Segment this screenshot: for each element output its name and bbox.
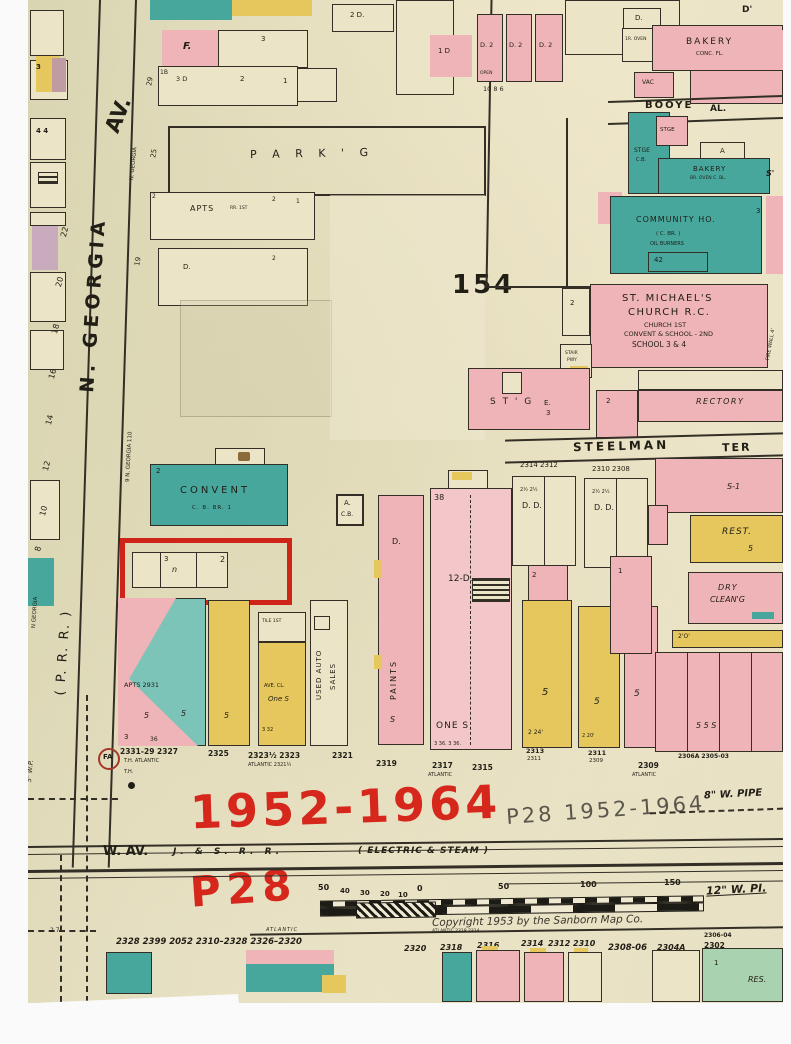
pipe-label-12w: 12" W. PI. [706,882,767,896]
erased-building-trace [180,300,332,417]
building [106,952,152,994]
lot-number: 2 20' [582,734,595,739]
lot-number: 2 [272,197,276,203]
lot-number: 2 24' [528,730,543,736]
used-auto-label-1: USED AUTO [316,650,323,700]
building [158,66,298,106]
parking-lot-outline [168,126,486,196]
convent-label: CONVENT [180,486,250,496]
building [208,600,250,746]
storeys: 5 [594,698,600,707]
lot-number: 3 [164,556,168,563]
bottom-left-numbers: 2328 2399 2052 2310–2328 2326–2320 [116,938,302,947]
bottom-tick-numbers: 2 7 [50,928,60,934]
scale-tick: 10 [398,892,408,899]
street-number: 2308-06 [608,944,647,953]
street-number: 2311 [588,750,606,757]
community-number: 42 [654,257,663,264]
st-michaels-line2: CHURCH R.C. [628,308,710,318]
dashed-track [60,855,62,1002]
house-number: 22 [60,226,70,238]
convent-note: C. B. BR. 1 [192,506,232,512]
street-label-ter: TER [722,442,752,454]
apts-sw-label: APTS 2931 [124,682,159,689]
fa-label: FA [103,754,112,761]
scale-tick: 150 [664,879,681,887]
building-label: D. [392,538,401,546]
building [622,28,654,62]
building-label: 1B [160,70,168,76]
tile-note: TILE 1ST [262,620,281,625]
erased-building-trace [330,195,485,440]
st-michaels-line3: CHURCH 1ST [644,322,686,329]
building [322,975,346,993]
building-bakery [652,25,783,71]
street-label-n-georgia: N. GEORGIA [78,216,109,393]
building-label: 2 D. [350,12,364,19]
scale-tick: 50 [498,883,509,891]
sanborn-map-scan: 3 4 4 22 20 18 16 14 12 10 8 N. GEORGIA … [28,0,783,1003]
building-paints [378,495,424,745]
lot-number: 1 [296,199,300,205]
annotation-red-years: 1952-1964 [189,779,502,836]
building-rest [690,515,783,563]
building-annex [314,616,330,630]
storage-label: S T ' G [490,398,533,407]
lot-number: 1 [618,568,622,575]
building-label: 1 D [438,48,450,55]
community-oil: OIL BURNERS [650,242,684,247]
street-number: 2312 2310 [548,940,595,948]
scale-tick: 50 [318,884,329,892]
bakery-label: BAKERY [686,38,733,47]
building-label: D. [183,264,191,271]
street-label-booye: BOOYE [645,101,693,111]
bakery2-label: BAKERY [693,166,726,173]
street-number: 2317 [432,762,453,770]
building-number-38: 38 [434,494,444,502]
building-label-s1: S-1 [727,483,740,491]
stair-symbol [38,172,58,184]
lot-number: 2 [220,556,225,564]
building-res [702,948,783,1002]
strip-label: 2'O' [678,634,690,640]
parking-label: P A R K ' G [250,147,374,160]
one-s-label: One S [268,696,289,703]
lot-number: 2 [570,300,574,307]
scale-tick: 0 [417,885,423,893]
street-number: 2323½ 2323 [248,752,300,760]
scan-margin-right [783,0,791,1024]
scale-tick: 30 [360,890,370,897]
railroad-label: J. & S. R. R. [173,848,283,857]
lot-number: 29 [146,76,154,86]
street-number: 2325 [208,750,229,758]
storeys: 5 [144,712,149,720]
building-label: A [720,148,725,155]
building [258,612,306,642]
building [766,196,783,274]
house-number-row: 10 8 6 [483,86,504,93]
building [655,458,783,513]
pipe-label-8w: 8" W. PIPE [704,788,763,801]
storeys: 5 [748,545,753,553]
th-label: T.H. [124,770,133,775]
acb-label-a: A. [344,500,351,507]
scale-tick: 40 [340,888,350,895]
scale-tick: 20 [380,891,390,898]
storeys: 5 [224,712,229,720]
street-number: 2321 [332,752,353,760]
community-br: ( C. BR. ) [656,232,680,238]
storeys: S [390,716,395,724]
rest-label: REST. [722,528,752,537]
building [634,72,674,98]
marker-dot [128,782,135,789]
lot-number: 2 [606,398,610,405]
community-label: COMMUNITY HO. [636,216,716,224]
lot-number: 2 [156,468,160,475]
building-tab [374,655,382,669]
res-label: RES. [748,976,766,984]
paints-label: PAINTS [390,660,398,700]
storeys: 5 [181,710,186,718]
street-label-steelman: STEELMAN [573,439,669,454]
building [430,35,472,77]
building-annex [502,372,522,394]
street-number: 2306A 2305-03 [678,754,729,760]
bakery2-note: BR. OVEN C. BL. [690,177,726,182]
storage-e: E. [544,400,551,407]
lot-number: 3 [124,734,128,741]
building-38 [430,488,512,750]
building-label: 2 [272,256,276,262]
building [30,10,64,56]
st-michaels-line4: CONVENT & SCHOOL - 2ND [624,331,713,338]
lot-number: 36 [150,737,158,743]
building [132,552,228,588]
stair-pwy-label2: PWY [567,359,577,364]
lot-number: 1 [714,960,718,967]
building-label: D. 2 [480,42,493,49]
building [30,330,64,370]
building [638,370,783,390]
block-line [566,118,568,288]
dashed-track [28,798,118,800]
oven-note: 1R. OVEN [625,38,651,43]
street-number: 2319 [376,760,397,768]
house-number: 16 [48,368,58,380]
street-number: 2311 [527,757,541,763]
building-tab [752,612,774,619]
marker-dot [238,452,250,461]
street-label-n-georgia-tiny: N GEORGIA [32,597,40,629]
building-label: D. D. [522,502,542,510]
street-number: T.H. ATLANTIC [124,759,159,764]
bottom-atlantic-small-2: ATLANTIC 2318 2314 [432,930,480,935]
street-number: 2306-04 [704,933,732,939]
building [522,600,572,748]
pipe-label-5w: 5" W.P. [28,760,34,783]
building [52,58,66,92]
building-apts [150,192,315,240]
ave-cl-label: AVE. CL. [264,684,285,689]
stair-pwy-label1: STAIR [565,352,578,357]
street-label-n-georgia-9: 9 N. GEORGIA 110 [126,431,134,482]
stge-label: STGE [660,128,675,134]
building [232,0,312,16]
st-michaels-line5: SCHOOL 3 & 4 [632,341,686,349]
building [648,505,668,545]
cleang-label: CLEAN'G [710,596,745,604]
storage-3: 3 [546,410,550,417]
building [596,390,638,438]
building [246,950,334,964]
building-label-f: F. [183,42,191,52]
building-label: S' [766,170,774,178]
building [442,952,472,1002]
one-s-label: ONE S. [436,722,473,731]
street-label-w-av: W. AV. [103,845,148,858]
storeys-note: 2½ 2½ [592,490,610,495]
street-label-n-georgia-small: N. GEORGIA [130,147,139,181]
storeys-note: 2½ 2½ [520,488,538,493]
building [28,558,54,606]
stair-symbol [472,578,510,602]
building-label: D. D. [594,504,614,512]
building-label: D. [635,15,643,22]
building [32,226,58,270]
building-divider [616,478,617,568]
lot-number: 19 [134,256,142,266]
building-divider [751,652,752,752]
stge-note: C.B. [636,158,646,163]
steelman-numbers: 2314 2312 [520,462,558,469]
acb-label-cb: C.B. [341,512,353,518]
lot-number: 2 [152,194,156,200]
street-number: 2313 [526,748,544,755]
building-divider [719,652,720,752]
dashed-track [86,695,88,1002]
building [30,212,66,226]
steelman-numbers: 2310 2308 [592,466,630,473]
building [610,556,652,654]
plate-number: 154 [452,272,515,298]
street-number: 2331-29 2327 [120,748,178,756]
building [30,162,66,208]
lot-number: 3 [261,36,265,43]
vac-label: VAC [642,80,654,86]
stge-label: STGE [634,148,650,154]
building [528,562,568,602]
building-divider [196,552,197,588]
annotation-red-plate: P28 [189,864,299,913]
building-tab [374,560,382,578]
building-divider [544,476,545,566]
street-number: 2309 [589,759,603,765]
house-number: 8 [34,546,43,553]
building-annex [562,288,590,336]
street-label-atlantic-small: ATLANTIC [266,928,298,933]
lot-number: 2 [532,572,536,579]
street-number: 2318 [440,944,462,952]
building [568,952,602,1002]
building-label: D. 2 [539,42,552,49]
st-michaels-line1: ST. MICHAEL'S [622,294,713,304]
building-divider [687,652,688,752]
building-label: 2 [240,76,244,83]
railroad-type-label: ( ELECTRIC & STEAM ) [358,847,489,856]
building [30,118,66,160]
storeys: 5 [634,690,640,699]
lot-number: 25 [150,148,158,158]
dry-label: DRY [718,584,738,592]
lot-numbers: 3 36. 3 36. [434,742,461,747]
building [524,952,564,1002]
street-number: 2315 [472,764,493,772]
building-label-12d: 12-D. [448,575,473,584]
lot-number: 4 4 [36,128,48,135]
street-number: 2309 [638,762,659,770]
storeys-row: 5 5 S [696,722,716,730]
building [297,68,337,102]
apts-label: APTS [190,205,214,213]
lot-number: n [172,566,177,574]
building [150,0,232,20]
rectory-label: RECTORY [696,398,744,406]
bakery-note: CONC. FL. [696,52,724,58]
building-label: D' [742,6,752,15]
lot-number: 3 32 [262,728,273,733]
street-label-al: AL. [710,105,726,114]
railroad-crossing-hatch [356,901,436,918]
building-label: 3 D [176,76,187,83]
building-divider [160,552,161,588]
scale-tick: 100 [580,881,597,889]
used-auto-label-2: SALES [330,663,337,690]
street-number: 2320 [404,945,426,953]
house-number: 14 [45,414,55,426]
street-number: ATLANTIC 2321½ [248,763,291,768]
building-label: OPEN [480,72,492,77]
lot-number: 3 [756,208,760,215]
party-wall-dashed [470,495,471,745]
building [652,950,700,1002]
storeys: 5 [542,688,548,698]
building [772,30,783,70]
building [476,950,520,1002]
copyright-note: Copyright 1953 by the Sanborn Map Co. [432,914,643,928]
building-rectory [638,390,783,422]
house-number: 12 [42,460,52,472]
street-number: 2314 [521,940,543,948]
apts-note: RR. 1ST [230,207,247,212]
building [158,248,308,306]
building-label: 1 [283,78,287,85]
scan-margin-left [0,0,28,1024]
street-label-prr: ( P. R. R. ) [54,609,73,696]
street-number: ATLANTIC [632,773,656,778]
lot-number: 3 [36,64,41,71]
building-label: D. 2 [509,42,522,49]
building-tab [452,472,472,480]
building [246,964,334,992]
dashed-track [28,930,96,932]
